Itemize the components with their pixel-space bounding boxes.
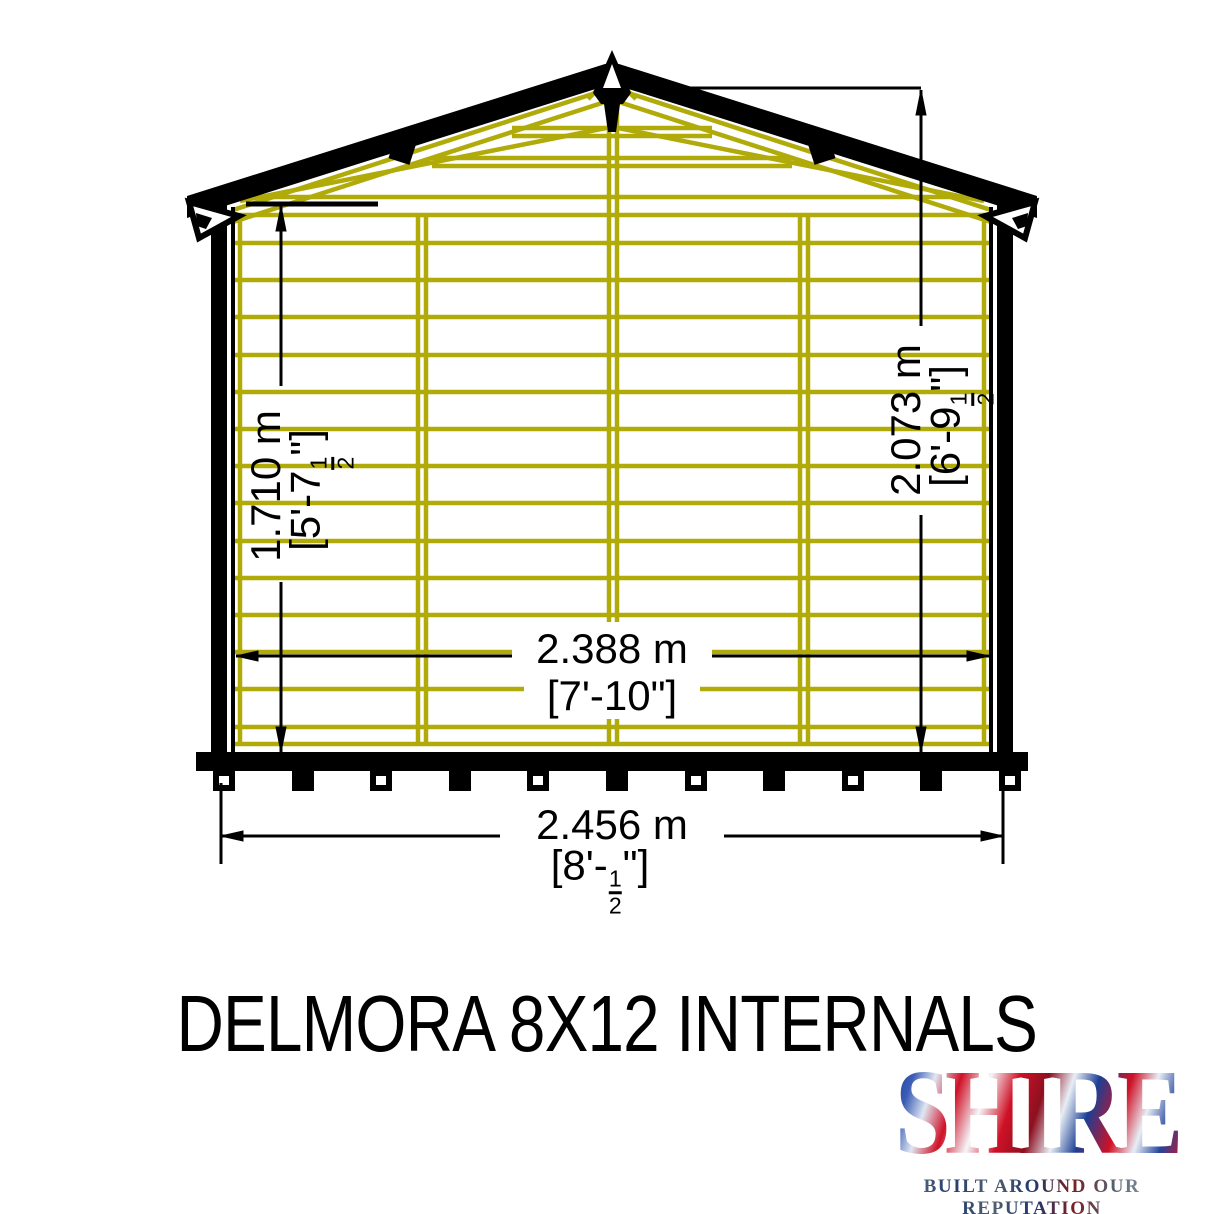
fraction-numerator: 1 bbox=[609, 868, 622, 892]
roof bbox=[187, 50, 1037, 238]
imperial-suffix: "] bbox=[281, 429, 328, 456]
fraction-numerator: 1 bbox=[948, 393, 972, 406]
imperial-prefix: [6'-9 bbox=[921, 407, 968, 487]
fraction: 12 bbox=[308, 456, 358, 471]
shed-internals-diagram: 1.710 m [5'-712"] 2.073 m [6'-912"] 2.38… bbox=[0, 0, 1214, 1214]
internal-width-imperial-label: [7'-10"] bbox=[547, 675, 677, 717]
shire-logo-tagline: BUILT AROUND OUR REPUTATION bbox=[864, 1176, 1200, 1214]
imperial-suffix: "] bbox=[623, 841, 650, 888]
external-width-imperial-label: [8'-12"] bbox=[551, 844, 649, 917]
floor-and-bearers bbox=[196, 752, 1028, 791]
imperial-prefix: [5'-7 bbox=[281, 471, 328, 551]
external-width-metric-label: 2.456 m bbox=[536, 804, 688, 846]
fraction: 12 bbox=[948, 392, 998, 407]
shire-logo-wordmark: SHIRE bbox=[895, 1052, 1178, 1174]
fraction-denominator: 2 bbox=[971, 393, 998, 406]
internal-width-metric-label: 2.388 m bbox=[536, 628, 688, 670]
imperial-suffix: "] bbox=[921, 365, 968, 392]
shire-logo: SHIRE BUILT AROUND OUR REPUTATION bbox=[864, 1052, 1200, 1214]
eaves-height-imperial-label: [5'-712"] bbox=[284, 429, 357, 551]
fraction-numerator: 1 bbox=[308, 457, 332, 470]
fraction-denominator: 2 bbox=[609, 891, 622, 918]
fraction-denominator: 2 bbox=[331, 457, 358, 470]
ridge-height-imperial-label: [6'-912"] bbox=[924, 365, 997, 487]
imperial-prefix: [8'- bbox=[551, 841, 608, 888]
fraction: 12 bbox=[608, 868, 623, 918]
